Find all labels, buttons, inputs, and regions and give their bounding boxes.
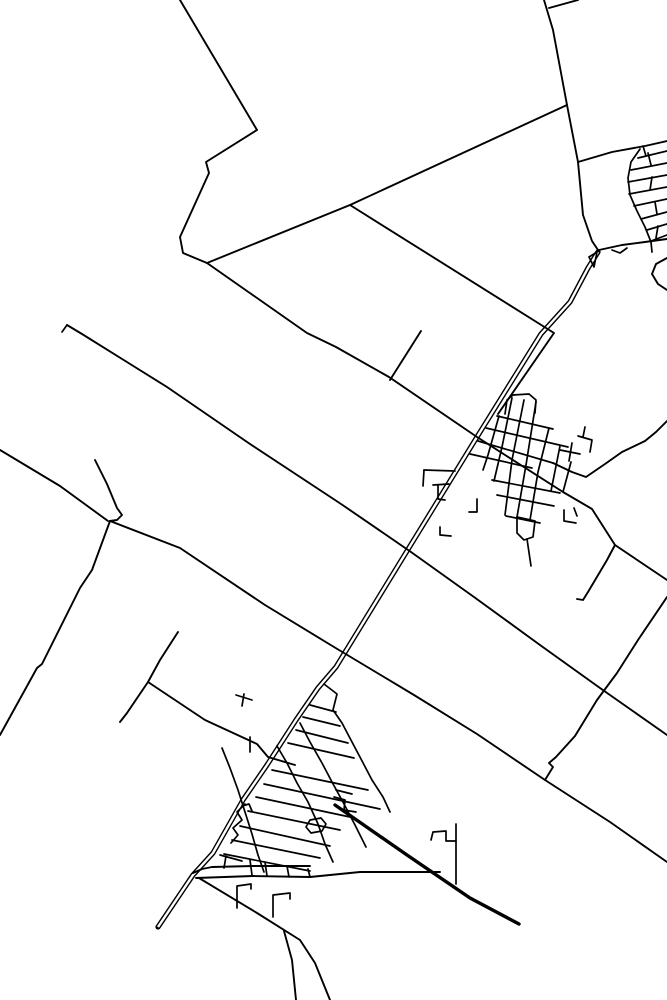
- c1-west-tick: [423, 470, 424, 486]
- map-viewport[interactable]: [0, 0, 667, 1000]
- c1-west-street-2: [433, 484, 449, 485]
- c1-west-street-1: [424, 470, 455, 471]
- map-canvas[interactable]: [0, 0, 667, 1000]
